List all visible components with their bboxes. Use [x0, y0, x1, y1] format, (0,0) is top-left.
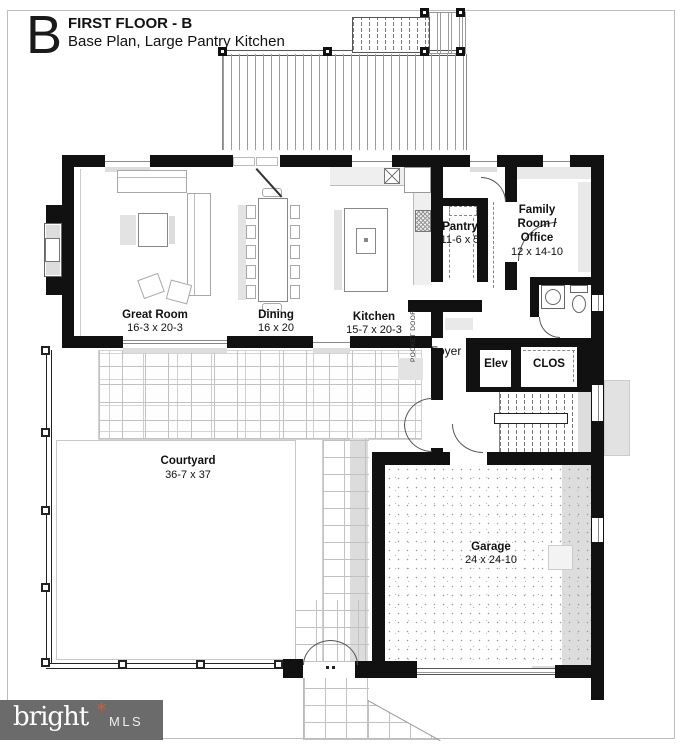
garage-door — [417, 668, 555, 675]
family-room-shadow — [517, 167, 591, 179]
dining-dims: 16 x 20 — [258, 322, 294, 335]
deck-post — [323, 47, 332, 56]
wall-segment — [150, 155, 233, 167]
fence-bottom — [46, 663, 286, 669]
wall-segment — [62, 336, 123, 348]
sill-shadow — [123, 348, 227, 353]
fence-post — [41, 506, 50, 515]
entry-walk-pavers — [303, 678, 369, 740]
floor-plan-page: B FIRST FLOOR - B Base Plan, Large Pantr… — [0, 0, 680, 744]
coffee-table — [138, 213, 168, 247]
logo-star-icon: * — [97, 700, 106, 721]
wall-segment — [530, 277, 591, 285]
toilet-bowl — [572, 295, 586, 313]
garage-dims: 24 x 24-10 — [465, 554, 517, 567]
dining-chair — [290, 245, 300, 259]
fireplace-wall — [46, 205, 62, 223]
dining-table — [258, 198, 288, 302]
closet-rod — [573, 350, 574, 382]
plan-letter: B — [26, 8, 62, 62]
elevator-label: Elev — [484, 358, 508, 371]
fence-post — [41, 428, 50, 437]
garage-label: Garage — [471, 541, 511, 554]
gate-hardware — [332, 666, 335, 669]
family-room-label: Room / — [518, 218, 557, 231]
dining-chair — [290, 285, 300, 299]
fence-post — [41, 346, 50, 355]
wall-segment — [505, 262, 517, 290]
side-stoop — [604, 380, 630, 456]
deck-post — [456, 47, 465, 56]
stair-rail — [494, 413, 568, 424]
gate-jamb — [283, 659, 303, 678]
faucet — [364, 238, 368, 242]
brightmls-logo: bright * MLS — [0, 700, 163, 740]
deck-door-panel — [233, 157, 255, 166]
foyer-shadow — [445, 318, 473, 330]
wall-segment — [530, 283, 539, 317]
wall-segment — [372, 452, 385, 678]
wall-segment — [280, 155, 352, 167]
garage-side-door — [548, 545, 573, 570]
dining-label: Dining — [258, 309, 294, 322]
family-room-label: Office — [521, 232, 554, 245]
dining-chair — [246, 285, 256, 299]
dining-chair — [246, 265, 256, 279]
fence-post — [118, 660, 127, 669]
dining-chair — [246, 205, 256, 219]
deck-post — [420, 8, 429, 17]
courtyard-label: Courtyard — [161, 455, 216, 468]
family-room-label: Family — [519, 204, 555, 217]
pantry-dims: 11-6 x 5 — [441, 234, 480, 247]
logo-suffix-text: MLS — [109, 714, 143, 729]
island-shadow — [334, 210, 342, 290]
window — [352, 156, 392, 166]
wall-segment — [350, 336, 432, 348]
dining-chair — [290, 225, 300, 239]
sofa — [117, 170, 187, 193]
pocket-door-label: POCKET DOOR — [410, 310, 417, 362]
rug-shadow — [120, 215, 136, 245]
deck-post — [420, 47, 429, 56]
wall-segment — [505, 167, 517, 202]
deck-door-panel — [256, 157, 278, 166]
window — [592, 295, 603, 311]
sofa-chaise — [187, 193, 211, 296]
wall-segment — [392, 155, 470, 167]
wall-segment — [555, 665, 604, 678]
deck-post — [456, 8, 465, 17]
wall-segment — [497, 155, 543, 167]
deck-post — [218, 47, 227, 56]
window — [105, 156, 150, 166]
wall-segment — [62, 155, 74, 348]
plan-subtitle: Base Plan, Large Pantry Kitchen — [68, 33, 285, 50]
tv — [45, 238, 60, 262]
dining-chair — [290, 205, 300, 219]
sink-bowl — [545, 289, 561, 305]
refrigerator — [404, 167, 431, 193]
window — [313, 338, 350, 346]
wall-segment — [591, 155, 604, 700]
stair-landing — [578, 392, 591, 454]
closet-label: CLOS — [533, 358, 565, 371]
plan-title: FIRST FLOOR - B — [68, 15, 192, 32]
wall-segment — [487, 452, 604, 465]
fence-post — [196, 660, 205, 669]
pantry-label: Pantry — [442, 221, 478, 234]
deck — [222, 54, 467, 150]
fireplace-wall — [46, 277, 62, 295]
hall-closet-dash — [493, 202, 494, 288]
fireplace-shadow — [46, 225, 60, 238]
courtyard-dims: 36-7 x 37 — [165, 469, 211, 482]
gate-hardware — [326, 666, 329, 669]
pantry-shelf — [449, 206, 477, 216]
foyer-label: Foyer — [431, 345, 462, 359]
window — [592, 518, 603, 542]
side-door-opening — [592, 385, 603, 421]
wall-segment — [227, 336, 313, 348]
range — [384, 168, 400, 184]
sill-shadow — [470, 167, 497, 172]
fence-post — [274, 660, 283, 669]
toilet-tank — [570, 285, 588, 293]
fence-post — [41, 658, 50, 667]
wall-segment — [372, 665, 417, 678]
cooktop-hatch — [415, 210, 431, 232]
dining-chair — [246, 245, 256, 259]
sill-shadow — [313, 348, 350, 353]
kitchen-label: Kitchen — [353, 311, 395, 324]
window — [543, 156, 570, 166]
deck-stairs — [352, 17, 430, 53]
family-room-dims: 12 x 14-10 — [511, 246, 563, 259]
interior-line — [80, 169, 81, 336]
family-room-shadow — [578, 182, 591, 272]
dining-chair — [246, 225, 256, 239]
fence-post — [41, 583, 50, 592]
dining-shadow — [238, 205, 246, 300]
great-room-dims: 16-3 x 20-3 — [127, 322, 183, 335]
sliding-door — [123, 338, 227, 346]
wall-segment — [408, 300, 482, 312]
dining-chair — [290, 265, 300, 279]
logo-brand-text: bright — [13, 702, 88, 732]
kitchen-dims: 15-7 x 20-3 — [346, 324, 402, 337]
window — [470, 156, 497, 166]
wall-segment — [431, 312, 443, 338]
great-room-label: Great Room — [122, 309, 188, 322]
table-shadow — [169, 216, 175, 244]
patio-pavers — [98, 350, 422, 440]
kitchen-counter-right — [413, 185, 432, 285]
closet-rod — [523, 350, 575, 351]
fireplace-shadow — [46, 262, 60, 275]
